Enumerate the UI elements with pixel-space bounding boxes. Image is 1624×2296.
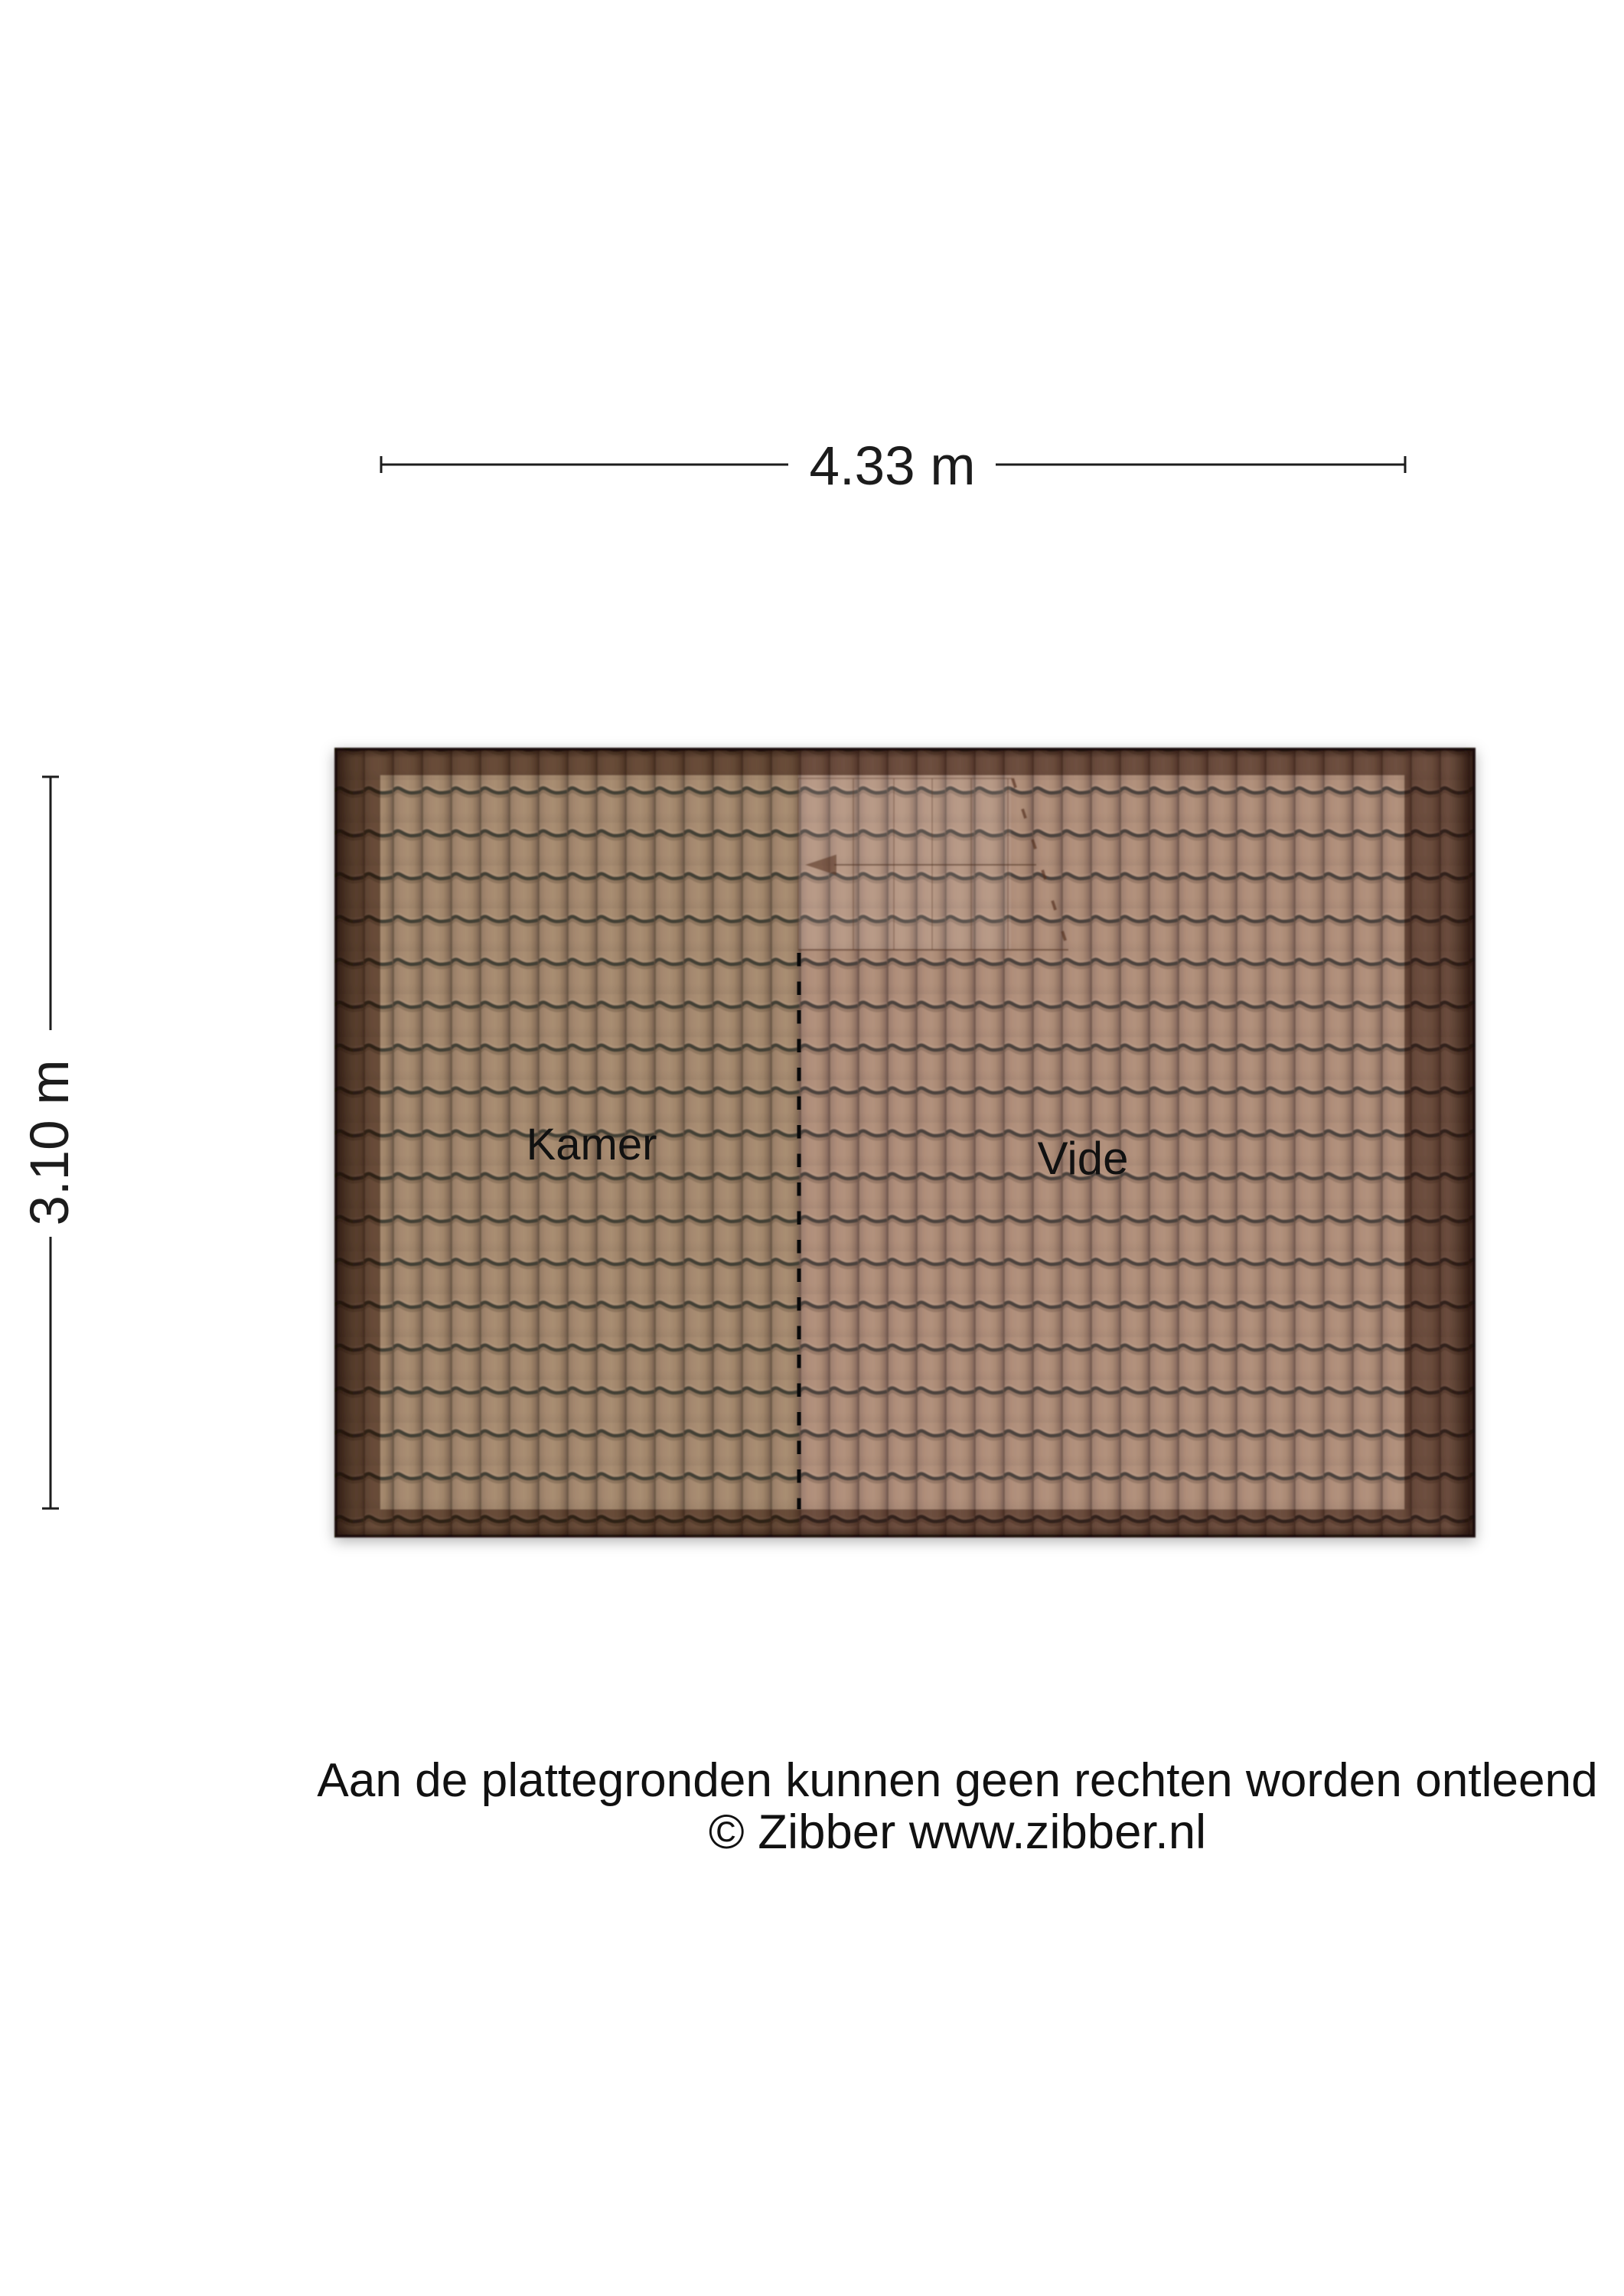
svg-text:Kamer: Kamer <box>527 1120 657 1169</box>
svg-text:Aan de plattegronden kunnen ge: Aan de plattegronden kunnen geen rechten… <box>317 1754 1597 1807</box>
svg-text:Vide: Vide <box>1037 1133 1128 1184</box>
svg-text:© Zibber www.zibber.nl: © Zibber www.zibber.nl <box>709 1805 1206 1859</box>
svg-text:3.10 m: 3.10 m <box>20 1059 80 1225</box>
svg-text:4.33 m: 4.33 m <box>809 436 975 497</box>
